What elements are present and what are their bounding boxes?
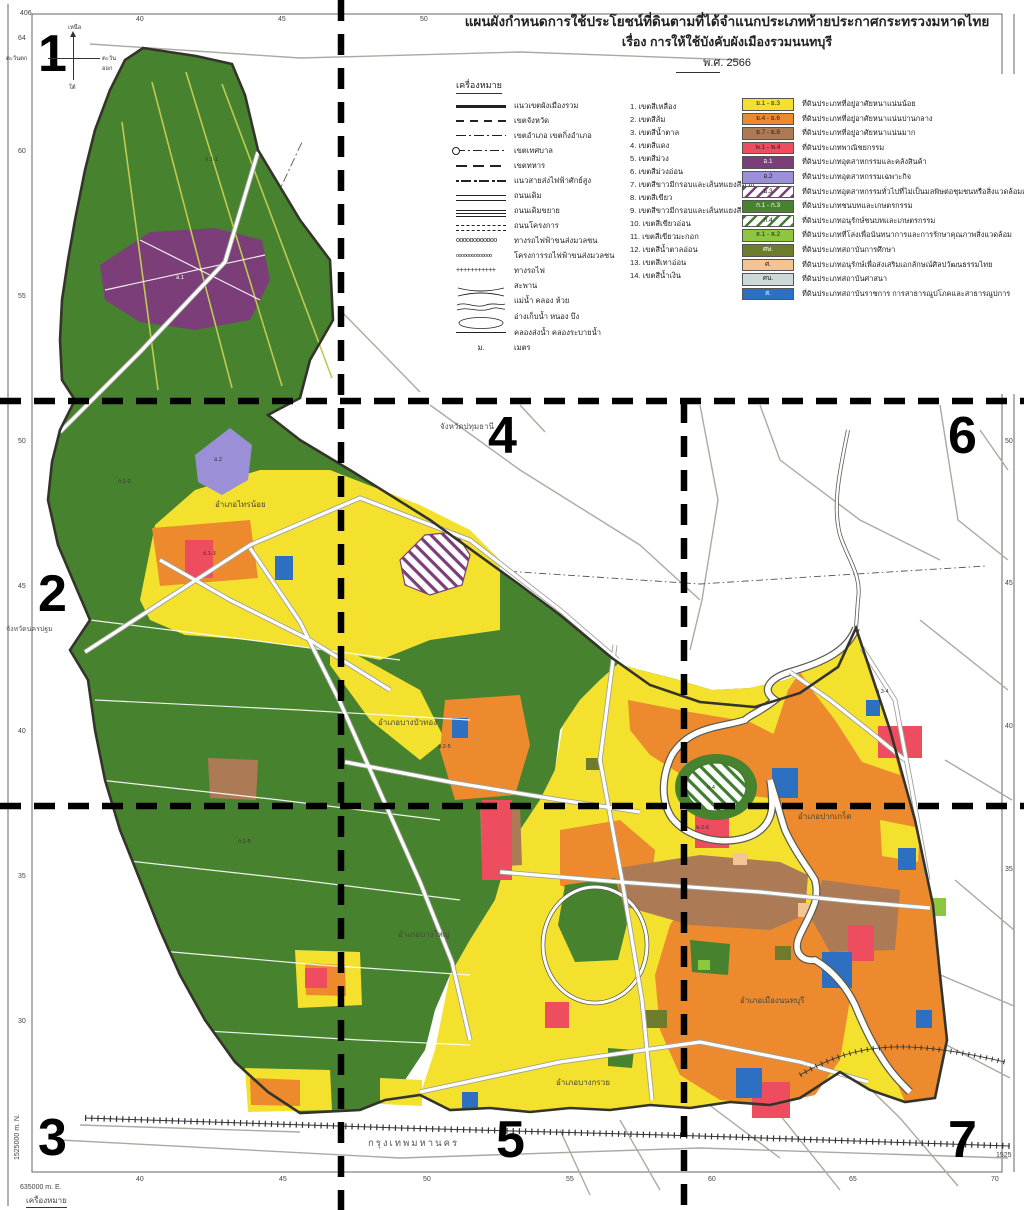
- title-line2: เรื่อง การให้ใช้บังคับผังเมืองรวมนนทบุรี: [430, 33, 1024, 52]
- title-line1: แผนผังกำหนดการใช้ประโยชน์ที่ดินตามที่ได้…: [430, 12, 1024, 33]
- swatch-purple: อ.1: [742, 156, 794, 169]
- thick-line-symbol: [456, 105, 506, 108]
- long-dash-line-symbol: [456, 165, 506, 167]
- swatch-lightpurple: อ.2: [742, 171, 794, 184]
- legend-line-row: ม.เมตร: [456, 342, 676, 356]
- legend-line-row: อ่างเก็บน้ำ หนอง บึง: [456, 311, 676, 325]
- grid-tick-right: 45: [1005, 580, 1013, 587]
- grid-tick-bottom: 40: [136, 1176, 144, 1183]
- legend-category: อ.1ที่ดินประเภทอุตสาหกรรมและคลังสินค้า: [742, 156, 1024, 170]
- double-line-wide-symbol: [456, 210, 506, 217]
- zone-code-label: ย.1-3: [203, 550, 216, 558]
- legend-category: ย.1 - ย.3ที่ดินประเภทที่อยู่อาศัยหนาแน่น…: [742, 98, 1024, 112]
- legend-category: อ.2ที่ดินประเภทอุตสาหกรรมเฉพาะกิจ: [742, 171, 1024, 185]
- zone-code-label: ย.3-4: [876, 688, 889, 696]
- district-label: อำเภอปากเกร็ด: [798, 810, 852, 823]
- sheet-number-2: 2: [38, 568, 67, 620]
- grid-corner-label: 406: [20, 10, 32, 17]
- legend-category: ส.ที่ดินประเภทสถาบันราชการ การสาธารณูปโภ…: [742, 288, 1024, 302]
- circles-line-symbol: oooooooooooo: [456, 235, 506, 247]
- grid-tick-left: 45: [18, 583, 26, 590]
- district-label: อำเภอไทรน้อย: [215, 498, 266, 511]
- district-label: อำเภอบางใหญ่: [398, 928, 450, 941]
- compass-horizontal-line: [48, 58, 100, 59]
- district-label: อำเภอบางบัวทอง: [378, 716, 437, 729]
- legend-line-row: คลองส่งน้ำ คลองระบายน้ำ: [456, 327, 676, 341]
- double-line-symbol: [456, 195, 506, 201]
- grid-tick-top: 50: [420, 16, 428, 23]
- compass-west-label: ตะวันตก: [6, 53, 27, 63]
- legend-header: เครื่องหมาย: [456, 78, 502, 94]
- easting-label: 635000 m. E.: [20, 1184, 62, 1191]
- legend-category: ศษ.ที่ดินประเภทสถาบันการศึกษา: [742, 244, 1024, 258]
- sheet-number-4: 4: [488, 410, 517, 462]
- legend-category: ก.1 - ก.3ที่ดินประเภทชนบทและเกษตรกรรม: [742, 200, 1024, 214]
- district-label: อำเภอเมืองนนทบุรี: [740, 994, 804, 1007]
- compass-east-label: ตะวันออก: [102, 53, 118, 73]
- zone-code-label: พ.2-6: [696, 824, 709, 832]
- legend-category: อ.3ที่ดินประเภทอุตสาหกรรมทั่วไปที่ไม่เป็…: [742, 186, 1024, 200]
- sheet-number-5: 5: [496, 1114, 525, 1166]
- map-sheet: { "palette":{ "yellow":"#f3e12e","orange…: [0, 0, 1024, 1210]
- grid-tick-top: 40: [136, 16, 144, 23]
- grid-tick-bottom: 45: [279, 1176, 287, 1183]
- circle-dash-dot-line-symbol: [456, 150, 506, 151]
- dashed-line-symbol: [456, 120, 506, 122]
- cross-line-symbol: +++++++++++: [456, 265, 506, 277]
- sheet-number-6: 6: [948, 410, 977, 462]
- swatch-brown: ย.7 - ย.8: [742, 127, 794, 140]
- legend-category: ศน.ที่ดินประเภทสถาบันศาสนา: [742, 273, 1024, 287]
- swatch-tan: ศ.: [742, 259, 794, 272]
- province-label-nakhonpathom: จังหวัดนครปฐม: [6, 624, 53, 635]
- meter-abbr: ม.: [456, 342, 506, 354]
- map-title: แผนผังกำหนดการใช้ประโยชน์ที่ดินตามที่ได้…: [430, 12, 1024, 72]
- province-label-bangkok: กรุงเทพมหานคร: [368, 1136, 459, 1151]
- sheet-number-7: 7: [948, 1114, 977, 1166]
- grid-tick-bottom: 55: [566, 1176, 574, 1183]
- northing-label: 1525000 m. N.: [14, 1114, 21, 1160]
- grid-tick-left: 50: [18, 438, 26, 445]
- legend-category: พ.1 - พ.4ที่ดินประเภทพาณิชยกรรม: [742, 142, 1024, 156]
- zone-code-label: ก.1-1: [205, 156, 218, 164]
- swatch-blue: ส.: [742, 288, 794, 301]
- compass-south-label: ใต้: [69, 82, 76, 92]
- grid-tick-bottom: 50: [423, 1176, 431, 1183]
- title-line3: พ.ศ. 2566: [430, 55, 1024, 72]
- thin-line-symbol: [456, 332, 506, 333]
- zone-code-label: อ.1: [176, 274, 184, 282]
- legend-category: ย.4 - ย.6ที่ดินประเภทที่อยู่อาศัยหนาแน่น…: [742, 113, 1024, 127]
- legend-category: ก.4ที่ดินประเภทอนุรักษ์ชนบทและเกษตรกรรม: [742, 215, 1024, 229]
- province-label-pathumthani: จังหวัดปทุมธานี: [440, 420, 494, 433]
- grid-tick-left: 60: [18, 148, 26, 155]
- sheet-number-3: 3: [38, 1112, 67, 1164]
- legend-footer-label: เครื่องหมาย: [26, 1194, 67, 1208]
- title-rule: [676, 72, 720, 73]
- district-label: อำเภอบางกรวย: [556, 1076, 610, 1089]
- grid-label-1525: 1525: [996, 1152, 1012, 1159]
- swatch-yellow: ย.1 - ย.3: [742, 98, 794, 111]
- zone-code-label: ก.4: [707, 784, 715, 792]
- zone-code-label: ย.2-5: [438, 743, 451, 751]
- zone-code-label: ก.1-2: [118, 478, 131, 486]
- swatch-red: พ.1 - พ.4: [742, 142, 794, 155]
- grid-tick-right: 50: [1005, 438, 1013, 445]
- compass-north-label: เหนือ: [68, 22, 81, 32]
- legend: เครื่องหมาย แนวเขตผังเมืองรวม เขตจังหวัด…: [448, 74, 1024, 394]
- grid-tick-left: 55: [18, 293, 26, 300]
- zone-code-label: ก.1-5: [238, 838, 251, 846]
- grid-tick-left: 30: [18, 1018, 26, 1025]
- grid-tick-bottom: 70: [991, 1176, 999, 1183]
- legend-line-row: แม่น้ำ คลอง ห้วย: [456, 295, 676, 309]
- swatch-lightgray: ศน.: [742, 273, 794, 286]
- power-line-symbol: [456, 180, 506, 182]
- swatch-orange: ย.4 - ย.6: [742, 113, 794, 126]
- double-dashed-line-symbol: [456, 225, 506, 231]
- grid-tick-right: 35: [1005, 866, 1013, 873]
- grid-tick-bottom: 60: [708, 1176, 716, 1183]
- dash-dot-line-symbol: [456, 135, 506, 136]
- grid-tick-top: 45: [278, 16, 286, 23]
- grid-tick-left: 64: [18, 35, 26, 42]
- grid-tick-left: 35: [18, 873, 26, 880]
- zone-hatched-conservation: [675, 754, 757, 820]
- compass-rose: เหนือ ใต้ ตะวันตก ตะวันออก: [38, 26, 118, 92]
- grid-tick-right: 40: [1005, 723, 1013, 730]
- grid-tick-bottom: 65: [849, 1176, 857, 1183]
- small-circles-line-symbol: oooooooooooooo: [456, 250, 506, 262]
- swatch-brightgreen: ล.1 - ล.2: [742, 229, 794, 242]
- swatch-green: ก.1 - ก.3: [742, 200, 794, 213]
- grid-tick-left: 40: [18, 728, 26, 735]
- swatch-hatch-purple: อ.3: [742, 186, 794, 199]
- zone-code-label: อ.2: [214, 456, 222, 464]
- legend-category: ล.1 - ล.2ที่ดินประเภทที่โล่งเพื่อนันทนาก…: [742, 229, 1024, 243]
- swatch-hatch-green: ก.4: [742, 215, 794, 228]
- legend-category: ศ.ที่ดินประเภทอนุรักษ์เพื่อส่งเสริมเอกลั…: [742, 259, 1024, 273]
- swatch-olive: ศษ.: [742, 244, 794, 257]
- legend-category: ย.7 - ย.8ที่ดินประเภทที่อยู่อาศัยหนาแน่น…: [742, 127, 1024, 141]
